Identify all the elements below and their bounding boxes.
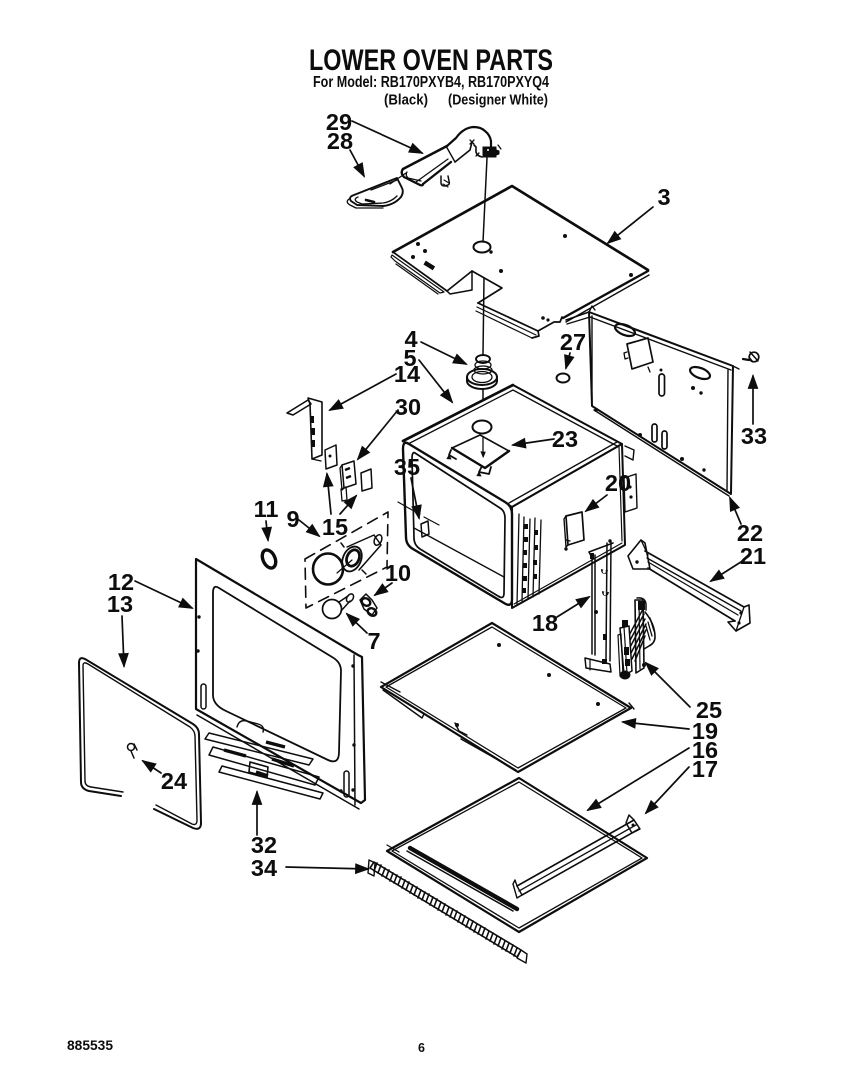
svg-text:21: 21	[740, 543, 766, 569]
svg-text:34: 34	[251, 855, 277, 881]
svg-text:17: 17	[692, 756, 718, 782]
svg-text:3: 3	[657, 184, 670, 210]
svg-text:6: 6	[418, 1041, 425, 1055]
svg-text:30: 30	[395, 394, 421, 420]
svg-text:13: 13	[107, 591, 133, 617]
svg-text:10: 10	[385, 560, 411, 586]
svg-text:9: 9	[286, 506, 299, 532]
svg-text:14: 14	[394, 361, 420, 387]
svg-text:LOWER OVEN PARTS: LOWER OVEN PARTS	[309, 44, 553, 77]
svg-text:11: 11	[254, 496, 279, 522]
svg-text:28: 28	[327, 128, 353, 154]
svg-text:For Model: RB170PXYB4, RB170PX: For Model: RB170PXYB4, RB170PXYQ4	[313, 74, 549, 91]
svg-text:33: 33	[741, 423, 767, 449]
svg-text:23: 23	[552, 426, 578, 452]
svg-text:18: 18	[532, 610, 558, 636]
svg-text:20: 20	[605, 470, 631, 496]
svg-text:(Designer White): (Designer White)	[448, 92, 548, 109]
svg-text:7: 7	[367, 628, 380, 654]
svg-text:35: 35	[394, 454, 420, 480]
svg-text:(Black): (Black)	[384, 92, 428, 109]
svg-text:885535: 885535	[67, 1038, 113, 1053]
svg-text:27: 27	[560, 329, 586, 355]
svg-text:24: 24	[161, 768, 187, 794]
svg-text:15: 15	[322, 514, 348, 540]
